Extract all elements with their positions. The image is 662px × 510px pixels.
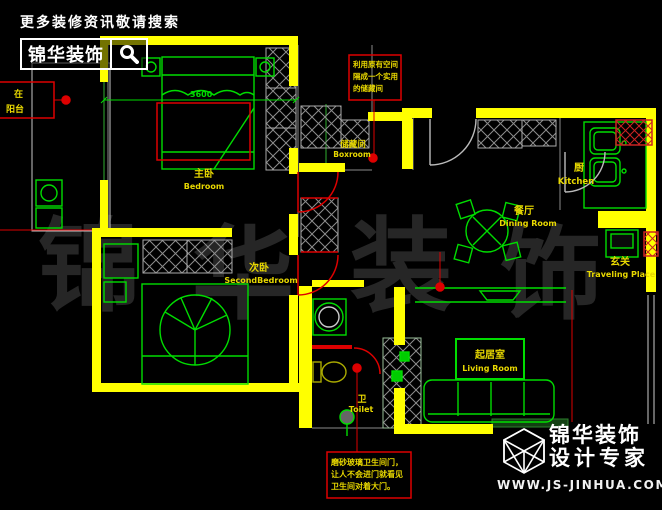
svg-text:隔成一个实用: 隔成一个实用: [353, 71, 398, 81]
cube-logo-icon: [503, 428, 545, 474]
svg-text:在: 在: [14, 88, 23, 100]
svg-text:让人不会进门就看见: 让人不会进门就看见: [331, 469, 403, 479]
kitchen-top-cabinet-hatch: [522, 120, 556, 146]
stove-hatch: [616, 120, 652, 145]
svg-text:Bedroom: Bedroom: [184, 182, 225, 191]
fridge: [606, 230, 638, 257]
svg-text:Dining Room: Dining Room: [499, 219, 557, 228]
svg-text:次卧: 次卧: [249, 261, 269, 274]
svg-text:Toilet: Toilet: [349, 405, 374, 414]
svg-text:3600: 3600: [190, 90, 213, 99]
label-kitchen: 厨 Kitchen: [558, 162, 594, 187]
search-icon: [119, 44, 139, 64]
storage-closet-hatch: [301, 106, 341, 148]
toilet: [313, 362, 346, 382]
svg-text:卫: 卫: [357, 394, 366, 405]
svg-text:SecondBedroom: SecondBedroom: [224, 276, 297, 285]
svg-text:Kitchen: Kitchen: [558, 177, 594, 187]
svg-text:玄关: 玄关: [610, 255, 630, 268]
svg-text:Boxroom: Boxroom: [333, 150, 371, 159]
label-master-bedroom: 主卧 Bedroom: [184, 167, 225, 191]
meter-box: [644, 232, 658, 256]
search-tagline: 更多装修资讯敬请搜索: [20, 12, 180, 32]
header-branding: 更多装修资讯敬请搜索 锦华装饰: [20, 12, 180, 70]
label-toilet: 卫 Toilet: [349, 394, 374, 414]
entry-top-cabinet-hatch: [478, 120, 522, 148]
master-bed: [142, 57, 274, 169]
footer-logo: 锦华装饰 设计专家 WWW.JS-JINHUA.COM: [497, 424, 657, 492]
footer-website: WWW.JS-JINHUA.COM: [497, 478, 657, 492]
svg-text:磨砂玻璃卫生间门，: 磨砂玻璃卫生间门，: [330, 457, 403, 467]
search-logo-box: 锦华装饰: [20, 38, 148, 70]
marker-dot: [62, 96, 70, 104]
marker-dot: [353, 364, 361, 372]
brand-name: 锦华装饰: [22, 40, 110, 68]
footer-brand-text: 锦华装饰 设计专家: [549, 424, 649, 470]
svg-text:利用原有空间: 利用原有空间: [352, 59, 398, 69]
entry-door-arc: [430, 119, 476, 165]
svg-text:储藏间: 储藏间: [339, 139, 366, 150]
floorplan-promo-image: 锦 华 装 饰: [0, 0, 662, 510]
svg-text:的储藏间: 的储藏间: [353, 83, 383, 93]
search-icon-cell: [110, 40, 146, 68]
footer-brand-line2: 设计专家: [549, 447, 649, 470]
svg-text:锦: 锦: [38, 208, 140, 327]
svg-text:Traveling Place: Traveling Place: [587, 270, 656, 279]
svg-text:阳台: 阳台: [6, 103, 24, 115]
svg-text:主卧: 主卧: [194, 167, 214, 180]
svg-text:Living Room: Living Room: [462, 364, 518, 373]
svg-text:卫生间对着大门。: 卫生间对着大门。: [331, 481, 395, 491]
svg-text:餐厅: 餐厅: [513, 204, 534, 217]
sofa: [424, 380, 554, 422]
marker-dot: [436, 283, 444, 291]
svg-text:厨: 厨: [574, 162, 584, 174]
footer-brand-line1: 锦华装饰: [549, 424, 649, 447]
label-living-room: 起居室 Living Room: [462, 348, 518, 373]
svg-text:起居室: 起居室: [474, 348, 505, 361]
